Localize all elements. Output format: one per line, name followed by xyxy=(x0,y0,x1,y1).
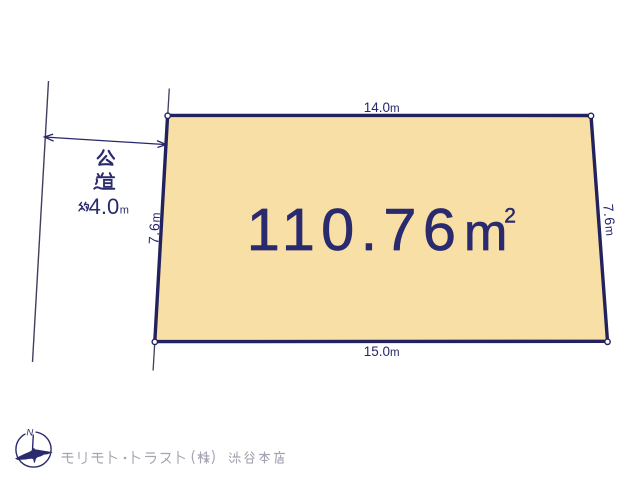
svg-text:14.0m: 14.0m xyxy=(364,100,400,115)
svg-text:N: N xyxy=(26,428,33,439)
svg-text:4.0: 4.0 xyxy=(89,194,120,219)
svg-text:7.6m: 7.6m xyxy=(145,211,163,244)
svg-text:110.76m: 110.76m xyxy=(247,196,508,263)
svg-text:7.6m: 7.6m xyxy=(600,203,619,237)
svg-text:15.0m: 15.0m xyxy=(364,344,400,359)
svg-text:2: 2 xyxy=(504,205,516,228)
svg-text:m: m xyxy=(120,205,129,217)
